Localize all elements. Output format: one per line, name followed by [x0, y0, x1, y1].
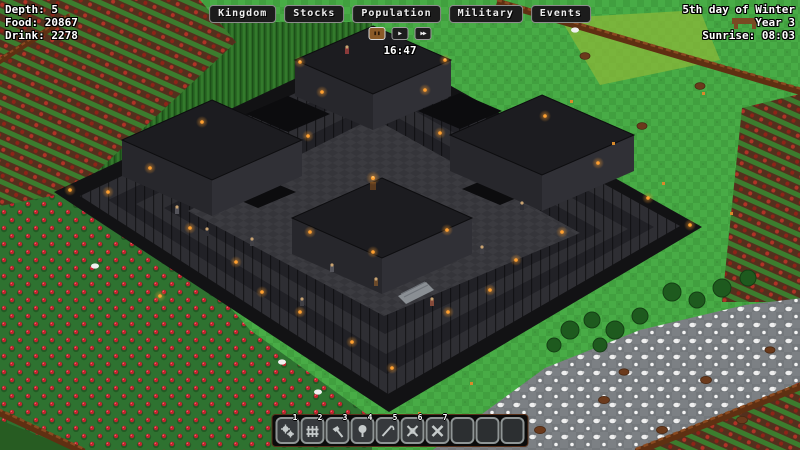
military-button[interactable]: Military: [449, 5, 523, 23]
toolbar-slot-hammer[interactable]: 3: [326, 417, 350, 444]
toolbar-slot-tree[interactable]: 4: [351, 417, 375, 444]
resource-panel: Depth: 5 Food: 20867 Drink: 2278: [5, 3, 78, 42]
slot-hotkey: 4: [368, 414, 373, 422]
scythe-icon: [380, 423, 396, 439]
kingdom-button[interactable]: Kingdom: [209, 5, 276, 23]
game-screen: Depth: 5 Food: 20867 Drink: 2278 5th day…: [0, 0, 800, 450]
game-viewport[interactable]: [0, 0, 800, 450]
action-toolbar: 1 2 3: [272, 414, 529, 447]
tree-icon: [355, 423, 371, 439]
stocks-button[interactable]: Stocks: [284, 5, 344, 23]
playback-controls: ▮▮ ▶ ▶▶: [369, 27, 432, 40]
game-clock: 16:47: [383, 44, 416, 57]
slot-hotkey: 3: [343, 414, 348, 422]
slot-hotkey: 6: [418, 414, 423, 422]
events-button[interactable]: Events: [531, 5, 591, 23]
fast-forward-button[interactable]: ▶▶: [415, 27, 432, 40]
population-button[interactable]: Population: [352, 5, 440, 23]
hammer-icon: [330, 423, 346, 439]
gears-icon: [280, 423, 296, 439]
date-readout: 5th day of Winter: [682, 3, 795, 16]
slot-hotkey: 5: [393, 414, 398, 422]
slot-hotkey: 7: [443, 414, 448, 422]
toolbar-slot-scythe[interactable]: 5: [376, 417, 400, 444]
toolbar-slot-cancel-build[interactable]: 6: [401, 417, 425, 444]
toolbar-slot-empty-2[interactable]: [476, 417, 500, 444]
clear-icon: [430, 423, 446, 439]
slot-hotkey: 2: [318, 414, 323, 422]
food-readout: Food: 20867: [5, 16, 78, 29]
pause-icon: ▮▮: [373, 31, 380, 37]
slot-hotkey: 1: [293, 414, 298, 422]
depth-readout: Depth: 5: [5, 3, 78, 16]
fence-icon: [305, 423, 321, 439]
pause-button[interactable]: ▮▮: [369, 27, 386, 40]
play-button[interactable]: ▶: [392, 27, 409, 40]
fast-forward-icon: ▶▶: [420, 31, 425, 37]
menu-bar: Kingdom Stocks Population Military Event…: [209, 5, 591, 23]
toolbar-slot-clear[interactable]: 7: [426, 417, 450, 444]
toolbar-slot-fence[interactable]: 2: [301, 417, 325, 444]
year-readout: Year 3: [682, 16, 795, 29]
drink-readout: Drink: 2278: [5, 29, 78, 42]
cancel-build-icon: [405, 423, 421, 439]
toolbar-slot-empty-1[interactable]: [451, 417, 475, 444]
play-icon: ▶: [398, 31, 402, 37]
toolbar-slot-gears[interactable]: 1: [276, 417, 300, 444]
toolbar-slot-empty-3[interactable]: [501, 417, 525, 444]
sunrise-readout: Sunrise: 08:03: [682, 29, 795, 42]
calendar-panel: 5th day of Winter Year 3 Sunrise: 08:03: [682, 3, 795, 42]
